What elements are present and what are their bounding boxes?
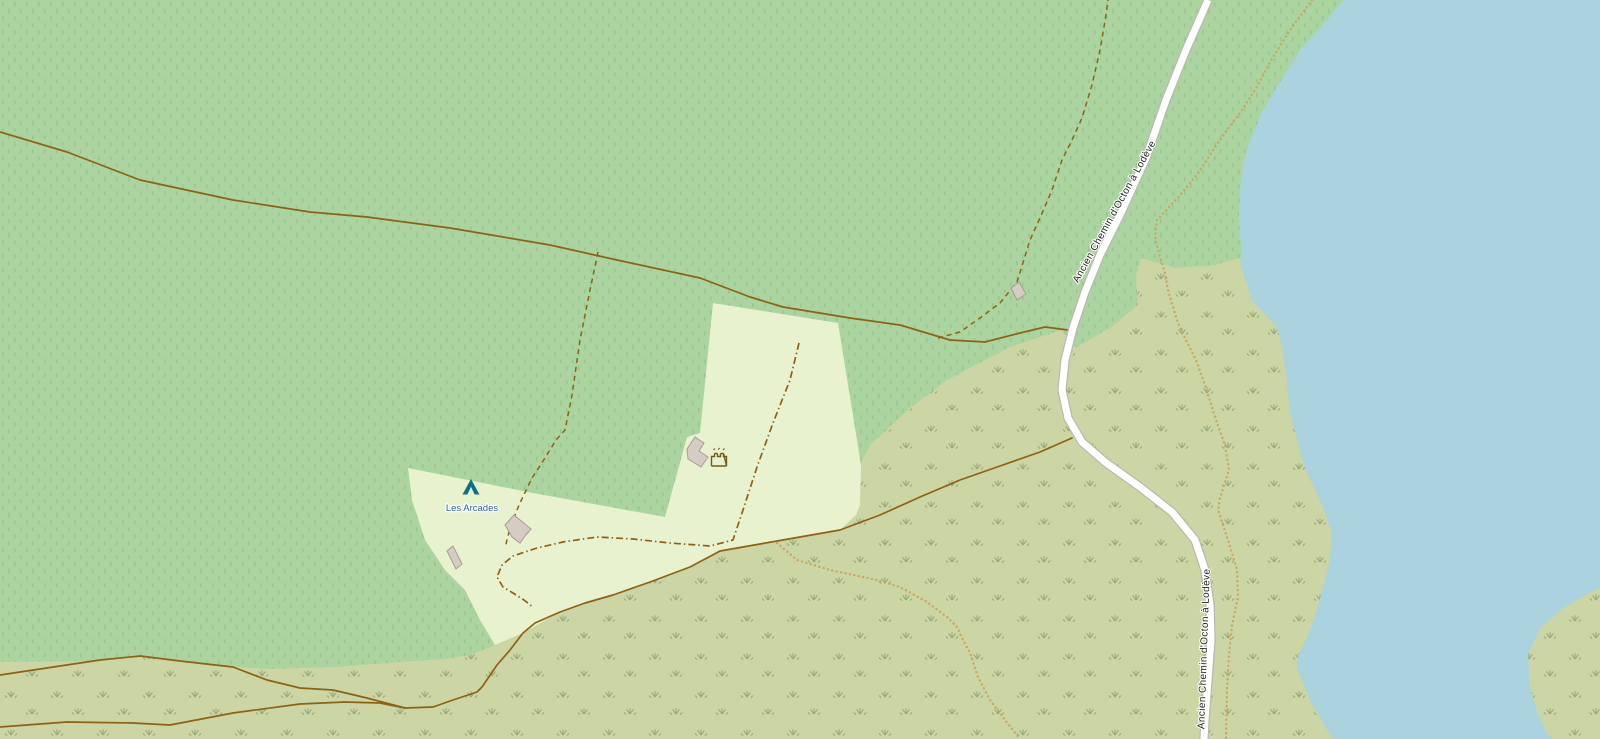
map-viewport[interactable]: Les ArcadesAncien Chemin d'Octon à Lodèv… bbox=[0, 0, 1600, 739]
campsite-label: Les Arcades bbox=[446, 503, 499, 514]
map-canvas[interactable]: Les ArcadesAncien Chemin d'Octon à Lodèv… bbox=[0, 0, 1600, 739]
